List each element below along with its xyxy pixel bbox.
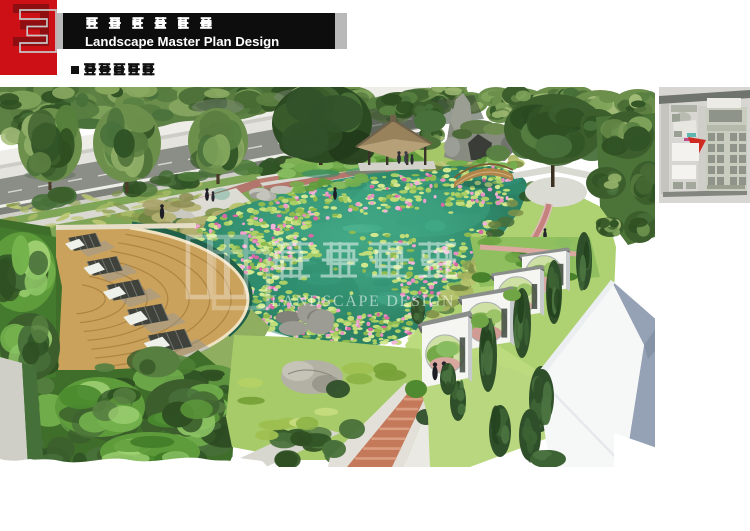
svg-text:Landscape Master Plan Design: Landscape Master Plan Design [85,34,279,49]
svg-text:LANDSCAPE DESIGN: LANDSCAPE DESIGN [271,293,455,310]
